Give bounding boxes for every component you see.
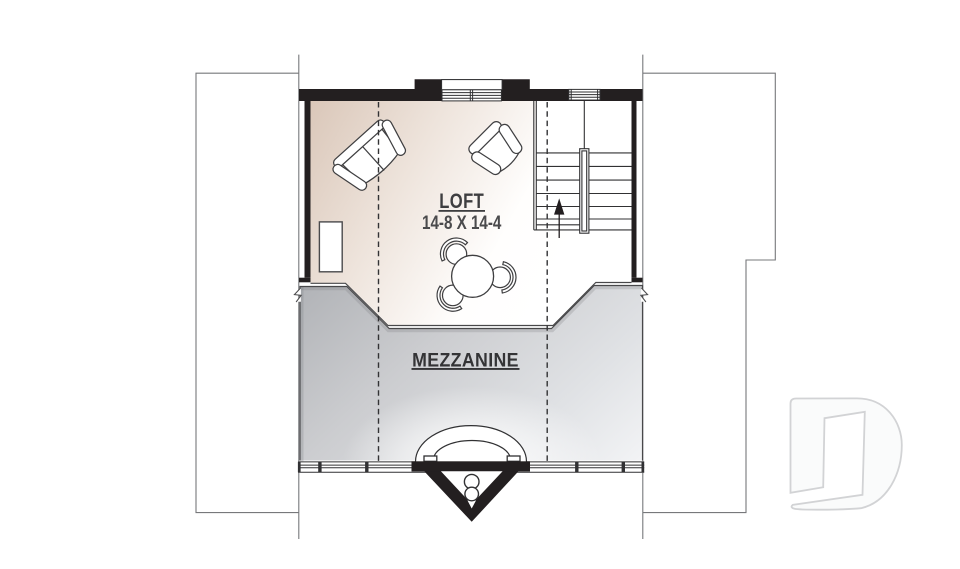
svg-text:14-8 X 14-4: 14-8 X 14-4 (422, 211, 502, 233)
svg-text:MEZZANINE: MEZZANINE (412, 349, 519, 371)
